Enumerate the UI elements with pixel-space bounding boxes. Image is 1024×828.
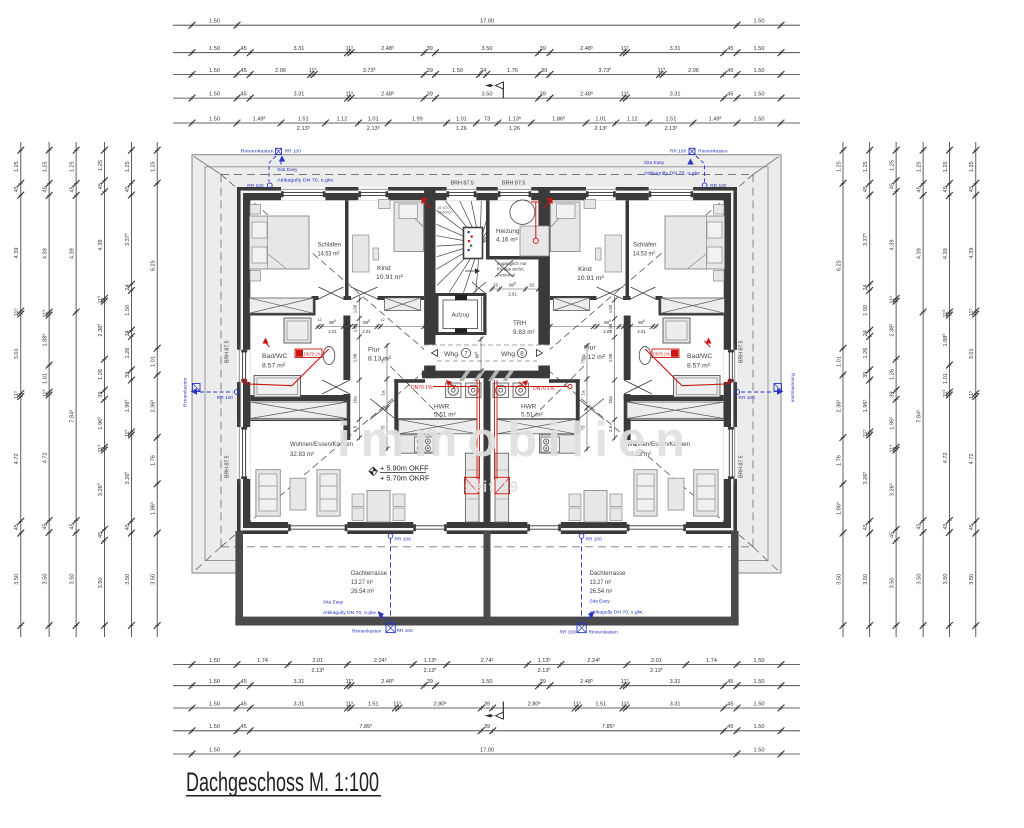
svg-text:3.50: 3.50	[890, 577, 896, 588]
svg-text:4.39: 4.39	[917, 248, 923, 259]
svg-text:1.01: 1.01	[151, 356, 157, 367]
svg-text:1.25: 1.25	[890, 160, 896, 171]
svg-text:36: 36	[624, 320, 629, 325]
svg-text:45: 45	[727, 701, 733, 707]
svg-text:DN70 1%: DN70 1%	[411, 385, 433, 391]
svg-text:1.26: 1.26	[456, 126, 467, 132]
svg-text:für das techn.: für das techn.	[497, 267, 525, 272]
svg-text:RR 100: RR 100	[217, 395, 234, 401]
svg-text:13.27 m²: 13.27 m²	[351, 579, 374, 586]
svg-text:4.39: 4.39	[98, 240, 104, 251]
svg-text:3.31: 3.31	[670, 701, 681, 707]
svg-text:1.51: 1.51	[665, 116, 676, 122]
svg-text:3.50: 3.50	[969, 574, 975, 585]
svg-text:17.00: 17.00	[480, 747, 494, 753]
svg-text:3.50: 3.50	[943, 574, 949, 585]
svg-text:45: 45	[98, 183, 104, 189]
svg-text:14.53 m²: 14.53 m²	[318, 251, 341, 258]
svg-text:1.25: 1.25	[836, 161, 842, 172]
svg-text:1.50: 1.50	[863, 305, 869, 316]
svg-text:RR 100: RR 100	[586, 536, 603, 542]
svg-text:Sita Easy: Sita Easy	[277, 167, 298, 173]
svg-text:1.25: 1.25	[151, 161, 157, 172]
svg-text:45: 45	[240, 46, 246, 52]
svg-text:3.50: 3.50	[151, 574, 157, 585]
svg-text:1.50: 1.50	[125, 305, 131, 316]
svg-text:2.06: 2.06	[275, 68, 286, 74]
svg-text:4.39: 4.39	[14, 248, 20, 259]
svg-text:Dachterrasse: Dachterrasse	[590, 570, 626, 577]
svg-text:24: 24	[480, 68, 486, 74]
svg-text:6.25: 6.25	[836, 260, 842, 271]
svg-text:8: 8	[520, 351, 524, 358]
svg-text:seit 19: seit 19	[465, 479, 520, 496]
svg-text:2.06: 2.06	[688, 68, 699, 74]
svg-text:75: 75	[380, 358, 385, 363]
svg-text:Sita Easy: Sita Easy	[323, 599, 344, 605]
svg-text:45: 45	[863, 186, 869, 192]
svg-text:Dachterrasse: Dachterrasse	[351, 570, 387, 577]
svg-text:3.31: 3.31	[293, 92, 304, 98]
svg-text:39: 39	[863, 372, 869, 378]
svg-text:1.50: 1.50	[754, 701, 765, 707]
svg-text:3.50: 3.50	[125, 574, 131, 585]
svg-text:45: 45	[863, 524, 869, 530]
svg-text:8.12 m²: 8.12 m²	[582, 354, 606, 361]
svg-text:4.16 m²: 4.16 m²	[496, 237, 518, 244]
svg-text:2.01: 2.01	[312, 658, 323, 664]
svg-text:45: 45	[917, 186, 923, 192]
svg-text:3.50: 3.50	[836, 574, 842, 585]
svg-text:RR 100: RR 100	[670, 149, 687, 155]
svg-text:BRH 87.5: BRH 87.5	[739, 455, 745, 478]
svg-text:BRH 87.5: BRH 87.5	[739, 340, 745, 363]
svg-text:+ 5.70m OKRF: + 5.70m OKRF	[380, 474, 430, 483]
svg-text:12: 12	[317, 318, 321, 322]
svg-text:1.51: 1.51	[368, 701, 379, 707]
svg-text:Schlafen: Schlafen	[633, 242, 657, 249]
svg-text:Schlafen: Schlafen	[318, 242, 342, 249]
svg-text:3.31: 3.31	[293, 701, 304, 707]
svg-text:1.01: 1.01	[836, 356, 842, 367]
svg-text:2.01: 2.01	[328, 329, 337, 334]
svg-text:1.99: 1.99	[412, 116, 423, 122]
svg-text:1.25: 1.25	[969, 161, 975, 172]
svg-text:1.12: 1.12	[627, 116, 638, 122]
svg-text:7: 7	[464, 351, 468, 358]
svg-text:1.74: 1.74	[706, 658, 717, 664]
svg-text:1.01: 1.01	[43, 373, 49, 384]
svg-text:HWR: HWR	[434, 404, 450, 411]
svg-text:1.25: 1.25	[125, 161, 131, 172]
svg-text:45: 45	[727, 724, 733, 730]
svg-text:45: 45	[14, 186, 20, 192]
svg-text:45: 45	[727, 68, 733, 74]
svg-text:Personal: Personal	[497, 272, 515, 277]
svg-text:39: 39	[890, 391, 896, 397]
svg-text:3.50: 3.50	[917, 574, 923, 585]
svg-text:Heizung: Heizung	[496, 228, 520, 235]
svg-text:Whg.: Whg.	[444, 351, 460, 358]
svg-text:RR 100: RR 100	[285, 149, 302, 155]
svg-text:3.31: 3.31	[293, 679, 304, 685]
svg-text:1.00: 1.00	[353, 304, 358, 313]
svg-text:16a: 16a	[353, 396, 358, 404]
svg-text:45: 45	[43, 523, 49, 529]
svg-text:BRH 87.5: BRH 87.5	[225, 455, 231, 478]
svg-text:4.72: 4.72	[14, 453, 20, 464]
svg-text:2.01: 2.01	[508, 291, 517, 296]
svg-text:39: 39	[540, 46, 546, 52]
svg-text:1.50: 1.50	[754, 92, 765, 98]
svg-text:2.01: 2.01	[651, 658, 662, 664]
svg-text:39: 39	[541, 68, 547, 74]
svg-text:10.91 m²: 10.91 m²	[376, 274, 404, 281]
svg-text:1.88: 1.88	[608, 353, 613, 362]
svg-text:45: 45	[890, 532, 896, 538]
svg-text:1.50: 1.50	[209, 68, 220, 74]
svg-text:45: 45	[240, 701, 246, 707]
svg-text:immobilien: immobilien	[337, 413, 695, 467]
svg-text:9.83 m²: 9.83 m²	[513, 329, 535, 336]
svg-text:1.01: 1.01	[943, 373, 949, 384]
svg-text:45: 45	[240, 679, 246, 685]
svg-text:1.25: 1.25	[943, 161, 949, 172]
svg-text:3.50: 3.50	[482, 679, 493, 685]
svg-text:39: 39	[540, 92, 546, 98]
svg-text:16a: 16a	[608, 396, 613, 404]
svg-text:Kind: Kind	[578, 266, 592, 273]
svg-text:32.83 m²: 32.83 m²	[290, 451, 315, 458]
svg-text:DN70 1%: DN70 1%	[304, 351, 321, 356]
svg-text:3.50: 3.50	[14, 574, 20, 585]
svg-text:Rinnenkasten: Rinnenkasten	[790, 373, 796, 403]
svg-text:39: 39	[427, 68, 433, 74]
svg-text:1.51: 1.51	[595, 701, 606, 707]
svg-text:45: 45	[727, 46, 733, 52]
svg-text:39: 39	[427, 92, 433, 98]
svg-text:Flur: Flur	[368, 347, 380, 354]
svg-text:Rinnenkasten: Rinnenkasten	[352, 628, 382, 634]
svg-text:39: 39	[540, 679, 546, 685]
svg-text:1.25: 1.25	[98, 160, 104, 171]
svg-text:4.72: 4.72	[943, 452, 949, 463]
svg-text:RR 100: RR 100	[395, 536, 412, 542]
svg-text:4.39: 4.39	[43, 248, 49, 259]
svg-text:3.50: 3.50	[482, 92, 493, 98]
svg-text:1.74: 1.74	[257, 658, 268, 664]
svg-text:1.12: 1.12	[336, 116, 347, 122]
svg-text:24: 24	[125, 330, 131, 336]
svg-text:18.6/26.0: 18.6/26.0	[438, 211, 453, 215]
svg-text:1.50: 1.50	[754, 724, 765, 730]
svg-text:Attikagully DN 70, o.glw.: Attikagully DN 70, o.glw.	[323, 610, 377, 616]
svg-text:BRH 87.5: BRH 87.5	[225, 340, 231, 363]
svg-text:45: 45	[240, 68, 246, 74]
svg-text:Rinnenkasten: Rinnenkasten	[698, 149, 728, 155]
svg-text:Flur: Flur	[584, 345, 596, 352]
svg-text:3.50: 3.50	[43, 574, 49, 585]
svg-text:1.00: 1.00	[608, 304, 613, 313]
svg-text:Rinnenkasten: Rinnenkasten	[183, 377, 189, 407]
svg-text:1.76: 1.76	[507, 68, 518, 74]
svg-text:zugänglich nur: zugänglich nur	[497, 261, 527, 266]
svg-text:3.50: 3.50	[482, 46, 493, 52]
svg-text:2.01: 2.01	[362, 329, 371, 334]
svg-text:1.50: 1.50	[209, 724, 220, 730]
svg-text:4.39: 4.39	[943, 248, 949, 259]
svg-text:3.31: 3.31	[670, 679, 681, 685]
svg-text:Aufzug: Aufzug	[452, 313, 469, 319]
svg-text:8.57 m²: 8.57 m²	[687, 363, 711, 370]
svg-text:45: 45	[98, 532, 104, 538]
svg-text:Dachgeschoss M. 1:100: Dachgeschoss M. 1:100	[186, 767, 379, 797]
svg-text:24: 24	[125, 284, 131, 290]
svg-text:Bad/WC: Bad/WC	[262, 353, 287, 360]
svg-text:1.76: 1.76	[151, 455, 157, 466]
svg-text:45: 45	[969, 186, 975, 192]
svg-text:75: 75	[580, 358, 585, 363]
svg-text:45: 45	[125, 186, 131, 192]
svg-text:DN70 1%: DN70 1%	[653, 351, 670, 356]
svg-text:1.26: 1.26	[890, 369, 896, 380]
svg-text:RR 100: RR 100	[560, 629, 577, 635]
svg-text:1.50: 1.50	[452, 68, 463, 74]
svg-text:45: 45	[727, 679, 733, 685]
svg-text:1.25: 1.25	[863, 161, 869, 172]
svg-text:Bad/WC: Bad/WC	[687, 353, 712, 360]
svg-text:45: 45	[70, 523, 76, 529]
svg-text:RR 100: RR 100	[710, 183, 727, 189]
svg-text:1.50: 1.50	[209, 46, 220, 52]
svg-text:25: 25	[493, 282, 498, 287]
svg-text:Attikagully DN 70, o.glw.: Attikagully DN 70, o.glw.	[277, 177, 334, 183]
svg-text:45: 45	[14, 524, 20, 530]
svg-text:39: 39	[427, 679, 433, 685]
svg-text:1.50: 1.50	[209, 19, 220, 25]
svg-text:45: 45	[240, 92, 246, 98]
svg-text:14.53 m²: 14.53 m²	[633, 251, 656, 258]
svg-text:4.39: 4.39	[890, 240, 896, 251]
svg-text:45: 45	[969, 524, 975, 530]
svg-text:Rinnenkasten: Rinnenkasten	[589, 629, 619, 635]
svg-text:Sita Easy: Sita Easy	[644, 160, 665, 166]
svg-text:4.39: 4.39	[969, 248, 975, 259]
svg-text:16 STG: 16 STG	[438, 206, 451, 210]
svg-text:3.50: 3.50	[863, 574, 869, 585]
svg-text:12: 12	[380, 318, 384, 322]
svg-text:1.50: 1.50	[209, 92, 220, 98]
svg-text:36: 36	[345, 320, 350, 325]
svg-text:1a: 1a	[380, 390, 385, 395]
svg-text:39: 39	[125, 372, 131, 378]
svg-text:1.76: 1.76	[836, 455, 842, 466]
svg-text:4.39: 4.39	[70, 248, 76, 259]
svg-text:1.01: 1.01	[595, 116, 606, 122]
svg-text:24: 24	[863, 330, 869, 336]
svg-text:73: 73	[484, 116, 490, 122]
svg-text:Sita Easy: Sita Easy	[590, 599, 611, 605]
svg-text:1.88: 1.88	[353, 353, 358, 362]
svg-text:1.01: 1.01	[456, 116, 467, 122]
svg-text:3.50: 3.50	[98, 577, 104, 588]
svg-text:RR 100: RR 100	[397, 628, 414, 634]
svg-text:2.01: 2.01	[637, 329, 646, 334]
svg-text:Rinnenkasten: Rinnenkasten	[241, 149, 274, 155]
svg-text:3.31: 3.31	[293, 46, 304, 52]
svg-text:1.50: 1.50	[209, 658, 220, 664]
svg-text:17.00: 17.00	[480, 19, 494, 25]
svg-text:1.50: 1.50	[209, 747, 220, 753]
svg-text:1.51: 1.51	[298, 116, 309, 122]
svg-text:BRH 87.5: BRH 87.5	[451, 181, 474, 187]
svg-text:45: 45	[917, 523, 923, 529]
svg-text:3.01: 3.01	[14, 348, 20, 359]
svg-text:1.26: 1.26	[509, 126, 520, 132]
svg-text:1.50: 1.50	[754, 658, 765, 664]
svg-text:3.31: 3.31	[670, 46, 681, 52]
svg-text:1.25: 1.25	[43, 161, 49, 172]
svg-text:1.50: 1.50	[754, 679, 765, 685]
svg-text:62: 62	[530, 282, 535, 287]
svg-text:2.01: 2.01	[603, 329, 612, 334]
svg-text:1.50: 1.50	[754, 747, 765, 753]
svg-text:3.31: 3.31	[670, 92, 681, 98]
svg-text:10.91 m²: 10.91 m²	[577, 275, 605, 282]
svg-text:Whg.: Whg.	[501, 351, 517, 358]
svg-text:39: 39	[484, 701, 490, 707]
svg-text:1.50: 1.50	[754, 19, 765, 25]
svg-text:4.72: 4.72	[43, 452, 49, 463]
svg-text:13.27 m²: 13.27 m²	[590, 579, 613, 586]
svg-text:Kind: Kind	[377, 265, 391, 272]
svg-text:1.50: 1.50	[754, 46, 765, 52]
svg-text:6.25: 6.25	[151, 260, 157, 271]
svg-text:45: 45	[70, 186, 76, 192]
svg-text:39: 39	[98, 391, 104, 397]
svg-text:45: 45	[890, 183, 896, 189]
svg-text:1.01: 1.01	[368, 116, 379, 122]
svg-text:26.54 m²: 26.54 m²	[590, 588, 614, 595]
svg-text:45: 45	[240, 724, 246, 730]
svg-text:45: 45	[943, 523, 949, 529]
svg-text:1.50: 1.50	[209, 116, 220, 122]
svg-text:1a: 1a	[580, 390, 585, 395]
svg-text:1.50: 1.50	[754, 116, 765, 122]
svg-text:3.50: 3.50	[70, 574, 76, 585]
svg-text:4.72: 4.72	[969, 453, 975, 464]
svg-text:HWR: HWR	[521, 404, 537, 411]
svg-text:1.25: 1.25	[70, 161, 76, 172]
svg-text:1.26: 1.26	[98, 369, 104, 380]
svg-text:26.54 m²: 26.54 m²	[351, 588, 375, 595]
svg-text:Attikagully DN 70, o.glw.: Attikagully DN 70, o.glw.	[644, 171, 701, 177]
svg-text:8.57 m²: 8.57 m²	[262, 363, 286, 370]
svg-text:TRH: TRH	[513, 320, 527, 327]
svg-text:45: 45	[125, 524, 131, 530]
svg-text:1.50: 1.50	[754, 68, 765, 74]
svg-text:39: 39	[484, 724, 490, 730]
svg-text:1.26: 1.26	[125, 348, 131, 359]
svg-text:RR 100: RR 100	[247, 183, 264, 189]
svg-text:1.26: 1.26	[863, 348, 869, 359]
svg-text:1.25: 1.25	[14, 161, 20, 172]
svg-text:39: 39	[427, 46, 433, 52]
svg-text:45: 45	[43, 186, 49, 192]
svg-text:RR 100: RR 100	[739, 395, 756, 401]
svg-text:1.50: 1.50	[209, 701, 220, 707]
svg-text:3.01: 3.01	[969, 348, 975, 359]
svg-text:Attikagully DN 70, o.glw.: Attikagully DN 70, o.glw.	[590, 610, 644, 616]
svg-text:24: 24	[863, 284, 869, 290]
svg-text:45: 45	[943, 186, 949, 192]
svg-text:BRH 87.5: BRH 87.5	[502, 181, 525, 187]
svg-text:45: 45	[727, 92, 733, 98]
svg-text:1.50: 1.50	[209, 679, 220, 685]
svg-text:1.25: 1.25	[917, 161, 923, 172]
